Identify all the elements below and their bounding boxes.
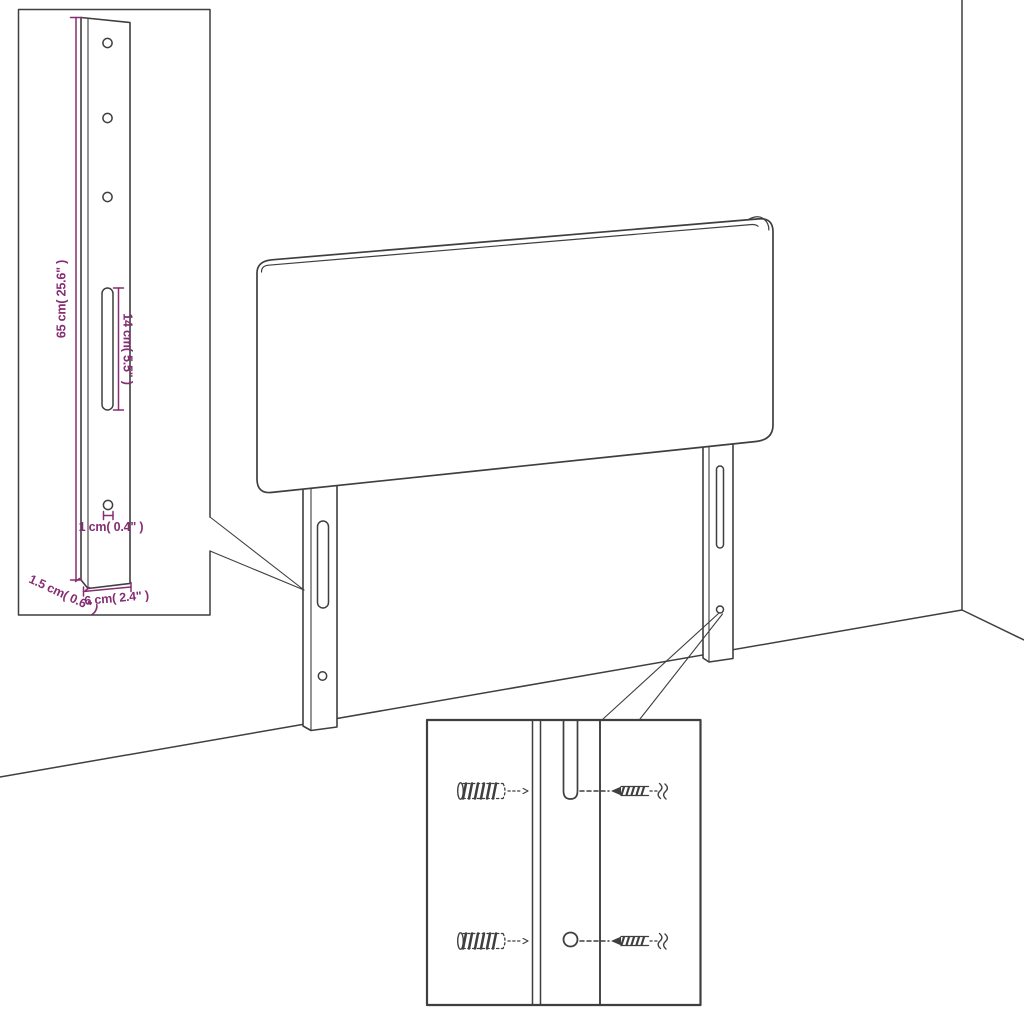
- right-leg-body: [703, 440, 733, 662]
- product-diagram-page: 65 cm( 25.6" ) 14 cm( 5.5" ) 1 cm( 0.4" …: [0, 0, 1024, 1024]
- headboard: [257, 217, 773, 493]
- hardware-detail-inset: [427, 720, 701, 1005]
- right-mounting-leg: [703, 440, 733, 662]
- height-dimension-label: 65 cm( 25.6" ): [55, 260, 69, 338]
- callout-line-left: [603, 614, 719, 720]
- bracket-callout-line-bottom: [210, 551, 304, 590]
- slot-dimension-label: 14 cm( 5.5" ): [121, 313, 135, 384]
- headboard-dimension-diagram: 65 cm( 25.6" ) 14 cm( 5.5" ) 1 cm( 0.4" …: [0, 0, 1024, 1024]
- bracket-callout-line-top: [210, 517, 304, 590]
- left-mounting-leg: [303, 484, 337, 731]
- bracket-front-view: [81, 18, 130, 589]
- hole-dimension-label: 1 cm( 0.4" ): [79, 520, 144, 534]
- callout-line-right: [640, 614, 723, 719]
